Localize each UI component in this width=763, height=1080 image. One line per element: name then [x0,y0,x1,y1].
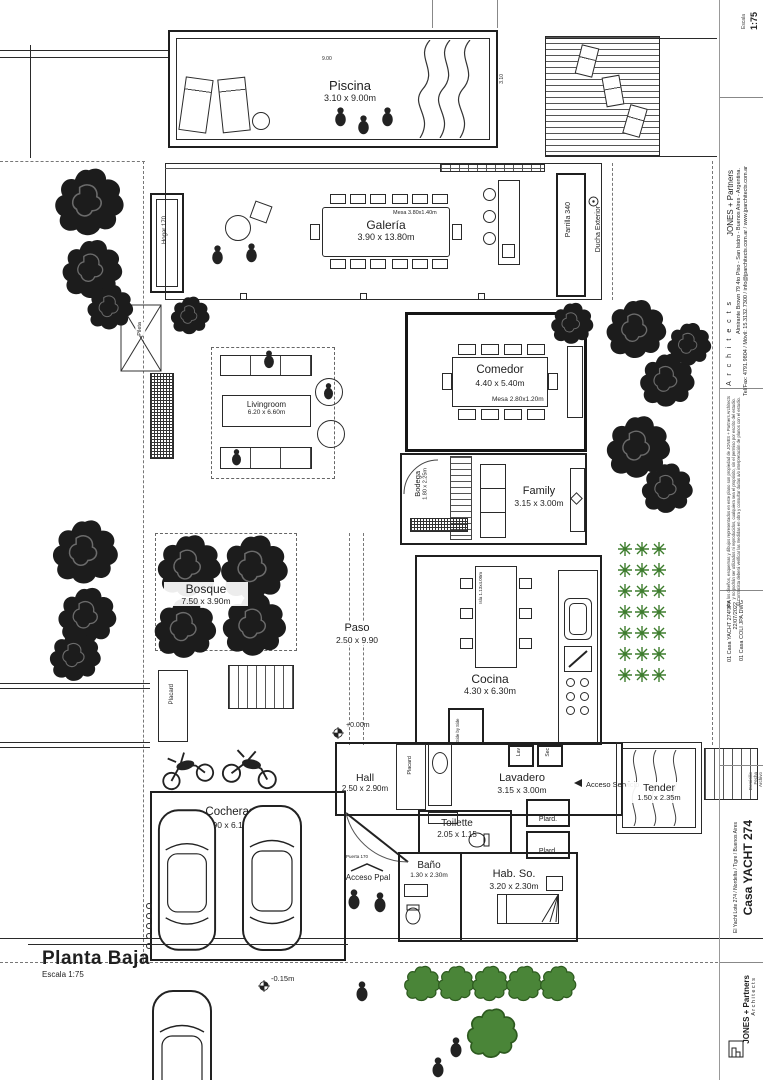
room-name: Family [503,485,575,498]
stone [146,903,152,909]
room-label-hall: Hall 2.50 x 2.90m [338,772,392,794]
deck [545,36,660,156]
sidebar-tick [720,97,763,98]
plard-label: Plard. [539,816,557,823]
bath-sink [404,884,428,897]
column [478,293,485,300]
room-label-ducha: Ducha Exterior [595,206,603,252]
room-name: Baño [398,860,460,872]
chair [412,194,428,204]
stool [460,608,473,619]
tree-icon [548,300,596,348]
room-dims: 4.30 x 6.30m [448,686,532,697]
person-figure [262,349,276,369]
car-icon [150,988,214,1080]
room-name: Piscina [300,78,400,93]
disclaimer-line: El Contratista deberá verificar las medi… [737,397,742,606]
person-figure [210,244,225,265]
room-dims: 1.30 x 2.30m [398,872,460,880]
bar-stool [483,232,496,245]
car-icon [240,803,304,953]
firm-name: JONES + Partners [726,170,735,236]
bed-fold-icon [540,894,560,924]
logo-firm-name: JONES + Partners [742,975,751,1044]
stool [519,608,532,619]
knife-icon [565,647,591,671]
chair [527,409,545,420]
chair [458,344,476,355]
level-marker-icon [332,727,344,739]
chair [527,344,545,355]
level-main-label: +0.00m [346,722,370,729]
room-label-cocina: Cocina 4.30 x 6.30m [448,672,532,697]
swimmer-figure [380,106,395,127]
tree-icon [664,320,714,370]
firm-logo-icon [728,1040,744,1058]
room-name: Hall [338,772,392,784]
column [360,293,367,300]
chair [370,194,386,204]
room-name: Comedor [450,364,550,378]
sidebar-divider [719,0,720,1080]
placard-paso [158,670,188,742]
chair [412,259,428,269]
door-arc [402,458,440,496]
plan-title-block: Planta Baja Escala 1:75 [42,948,150,979]
burner [580,692,589,701]
level-marker-icon [258,980,270,992]
street-line [0,938,763,939]
chair [504,344,522,355]
planter [150,373,174,459]
toilet-icon [468,830,490,850]
person-figure [322,382,335,400]
person-figure [230,448,243,466]
project-title: Casa YACHT 274 [742,820,756,915]
site-line [545,156,717,157]
stool [519,578,532,589]
terrace-line [0,688,150,689]
planter [410,518,468,532]
vanity [428,812,458,824]
stone [146,933,152,939]
floor-plan-sheet: Piscina 3.10 x 9.00m 9.00 3.10 Mesa 3.80… [0,0,763,1080]
escala-label: Escala [742,14,748,29]
room-label-lavadero: Lavadero 3.15 x 3.00m [484,772,560,795]
room-label-placard-hall: Placard [407,756,413,775]
lot-line [143,161,144,962]
site-line [0,57,168,58]
puerta-label: Puerta 170 [346,854,368,859]
round-table [225,215,251,241]
swimmer-figure [333,106,348,127]
galeria-mesa-label: Mesa 3.80x1.40m [393,210,437,216]
chair [350,259,366,269]
person-figure [354,980,370,1002]
placard-hall [396,744,426,810]
room-name: Livingroom [223,400,310,409]
armchair [317,420,345,448]
level-entry-label: -0.15m [271,974,294,983]
lot-line [0,161,145,162]
room-label-paso: Paso 2.50 x 9.90 [328,622,386,645]
sidebar-tick [720,765,763,766]
room-label-pileta: Pileta [135,322,145,336]
room-dims: 7.50 x 3.90m [166,596,246,606]
room-label-tender: Tender 1.50 x 2.35m [626,782,692,803]
dim-tick [497,0,498,28]
room-name: Cocina [448,672,532,686]
shelf-line [481,488,505,489]
room-label-piscina: Piscina 3.10 x 9.00m [300,78,400,104]
laundry-sink [432,752,448,774]
room-name: Lavadero [484,772,560,785]
nightstand [546,876,563,891]
chair [330,194,346,204]
sidebar-tick [720,388,763,389]
firm-contact: Tel/Fax: 4791.9804 / Móvil: 15.3132.7300… [743,166,749,396]
burner [566,706,575,715]
green-tree-icon [464,1006,520,1062]
room-label-parrilla: Parrilla 340 [565,202,573,237]
meta-label: Archivo [758,772,763,787]
hedge-icon [618,542,670,692]
terrace-line [0,742,150,743]
site-line [30,45,31,158]
washer-label: Lav [517,748,523,756]
room-name: Paso [330,622,384,635]
project-location: El Yacht Lote 274 / Nordelta / Tigre / B… [734,822,740,933]
car-icon [156,806,218,954]
sidebar-tick [720,962,763,963]
chair [330,259,346,269]
tree-icon [50,164,128,242]
room-label-placard-paso: Placard [169,684,176,704]
stool [519,638,532,649]
tree-icon [168,294,212,338]
room-label-bosque: Bosque 7.50 x 3.90m [164,582,248,606]
site-line [0,50,168,51]
escala-value: 1:75 [749,12,759,30]
burner [580,678,589,687]
person-figure [430,1056,446,1078]
room-dims: 3.15 x 3.00m [503,498,575,508]
coffee-table: Livingroom 6.20 x 6.60m [222,395,311,427]
room-label-comedor: Comedor 4.40 x 5.40m [450,364,550,388]
entry-mark-icon [350,862,384,872]
bar-stool [483,210,496,223]
firm-name-block: JONES + Partners [726,170,735,236]
tree-icon [48,516,122,590]
page-scale: Escala 1:75 [42,970,150,979]
pool-table [252,112,270,130]
title-line [28,944,348,945]
room-label-galeria: Galería 3.90 x 13.80m [336,218,436,243]
swimmer-figure [356,114,371,135]
motorcycle-icon [154,742,218,794]
chair [481,344,499,355]
chair [392,194,408,204]
chair [370,259,386,269]
green-tree-icon [538,964,578,1004]
chair [310,224,320,240]
room-dims: 6.20 x 6.60m [223,409,310,417]
file-line: 01 Casa COLI JPA.DWG [739,600,745,661]
room-dims: 1.50 x 2.35m [628,794,690,803]
room-dims: 3.10 x 9.00m [300,93,400,104]
chair [432,259,448,269]
page-title: Planta Baja [42,948,150,970]
chair [458,409,476,420]
chair [392,259,408,269]
shelf-line [481,512,505,513]
burner [566,692,575,701]
terrace-line [0,747,150,748]
bar-stool [483,188,496,201]
dim-label-pool-length: 9.00 [322,56,332,62]
room-dims: 2.50 x 9.90 [330,635,384,645]
dim-tick [432,0,433,28]
lot-line [612,163,613,300]
room-name: Galería [336,218,436,232]
arrow-left-icon [574,779,582,787]
chair [481,409,499,420]
pool-water-icon [408,40,492,138]
fridge-label: Side by Side [456,711,478,742]
person-figure [372,891,388,913]
plard-1: Plard. [526,799,570,827]
column [240,293,247,300]
toilet-icon [404,904,422,926]
chair [504,409,522,420]
room-dims: 3.90 x 13.80m [336,232,436,243]
firm-address: Almirante Brown 79 4to Piso - San Isidro… [736,168,742,334]
room-label-family: Family 3.15 x 3.00m [503,485,575,508]
room-label-hogar: Hogar 170 [162,216,169,244]
room-dims: 4.40 x 5.40m [450,378,550,388]
stool [460,638,473,649]
bed-pillow-line [506,894,507,924]
person-figure [448,1036,464,1058]
dim-label-pool-width: 3.10 [500,74,506,84]
burner [566,678,575,687]
comedor-mesa-label: Mesa 2.80x1.20m [492,396,544,403]
room-label-bano: Baño 1.30 x 2.30m [398,860,460,879]
stone [146,913,152,919]
firm-type: A r c h i t e c t s [726,300,734,386]
acceso-ppal-label: Acceso Ppal [336,873,400,882]
dryer-label: Sec [546,748,552,757]
logo-firm-type: A r c h i t e c t s [751,978,757,1016]
pergola-band [440,164,545,172]
room-name: Bosque [166,582,246,596]
lot-line [712,161,713,745]
person-figure [244,242,259,263]
chair [432,194,448,204]
tree-icon [638,460,696,518]
tree-icon [84,282,136,334]
stool [460,578,473,589]
tree-icon [46,628,104,686]
lounge-chair [217,77,250,134]
stairs [228,665,294,709]
isla-label: Isla 1.13x4.00m [478,572,483,604]
bar-sink [502,244,515,258]
chair [452,224,462,240]
sideboard [567,346,583,418]
burner [580,706,589,715]
room-dims: 2.50 x 2.90m [338,784,392,793]
motorcycle-icon [219,741,283,792]
person-figure [346,888,362,910]
chair [350,194,366,204]
stone [146,923,152,929]
room-dims: 3.15 x 3.00m [484,785,560,795]
sink-basin [569,603,587,635]
